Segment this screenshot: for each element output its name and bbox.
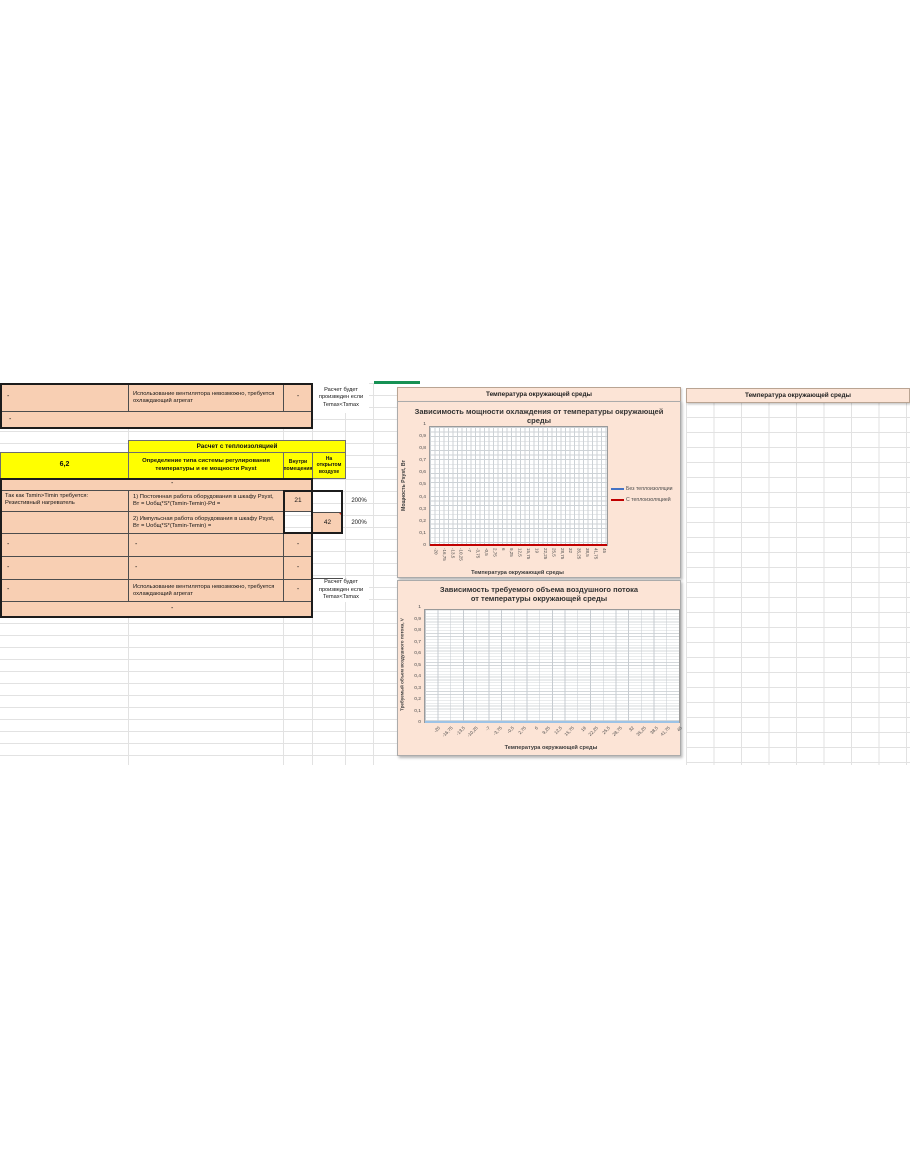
tick-label: 28,75 [555, 546, 563, 570]
tick-label: 0,5 [419, 482, 426, 487]
tick-label: 38,5 [581, 546, 589, 570]
chart1-series-line-red [430, 544, 607, 546]
chart-airflow-volume[interactable]: Зависимость требуемого объема воздушного… [397, 580, 681, 756]
tick-label: 0,2 [419, 519, 426, 524]
cell-top-value[interactable]: - [283, 383, 313, 412]
chart1-y-ticks: 10,90,80,70,60,50,40,30,20,10 [411, 422, 426, 548]
cell-r5-a[interactable]: - [0, 579, 129, 602]
tick-label: 32 [564, 546, 572, 570]
tick-label: 2,75 [488, 546, 496, 570]
tick-label: 0,9 [419, 434, 426, 439]
chart2-series-line-lightblue [425, 721, 679, 723]
tick-label: 0,4 [414, 674, 421, 679]
cell-r1-formula[interactable]: 1) Постоянная работа оборудования в шкаф… [128, 490, 284, 512]
chart-cooling-power[interactable]: Зависимость мощности охлаждения от темпе… [397, 401, 681, 578]
cell-r1-inside[interactable]: 21 [283, 490, 313, 512]
chart2-y-ticks: 10,90,80,70,60,50,40,30,20,10 [406, 605, 421, 725]
chart1-y-axis-title: Мощность Psyst, Вт [399, 426, 409, 544]
tick-label: 6 [496, 546, 504, 570]
tick-label: 19 [530, 546, 538, 570]
tick-label: 45 [597, 546, 605, 570]
tick-label: -0,5 [480, 546, 488, 570]
cell-r2-formula[interactable]: 2) Импульсная работа оборудования в шкаф… [128, 511, 284, 534]
tick-label: 22,25 [538, 546, 546, 570]
tick-label: 35,25 [572, 546, 580, 570]
tick-label: 0,3 [419, 507, 426, 512]
cell-r1-condition[interactable]: Так как Tsmin>Timin требуется: Резистивн… [0, 490, 129, 512]
tick-label: 1 [423, 422, 426, 427]
tick-label: -3,75 [471, 546, 479, 570]
tick-label: 0,1 [414, 709, 421, 714]
cell-dash-bottom-merged[interactable]: - [0, 601, 313, 618]
tick-label: 0,7 [419, 458, 426, 463]
tick-label: -10,25 [454, 546, 462, 570]
tick-label: 25,5 [547, 546, 555, 570]
tick-label: -20 [429, 546, 437, 570]
cell-r2-condition-empty[interactable] [0, 511, 129, 534]
chart2-plot-area [424, 609, 680, 723]
section-item-title[interactable]: Определение типа системы регулирования т… [128, 452, 284, 479]
tick-label: 1 [418, 605, 421, 610]
selection-border-fragment [374, 381, 420, 384]
tick-label: 12,5 [513, 546, 521, 570]
legend-line-red [611, 499, 624, 501]
cell-r5-fan-text[interactable]: Использование вентилятора невозможно, тр… [128, 579, 284, 602]
tick-label: 0,1 [419, 531, 426, 536]
cell-top-a[interactable]: - [0, 383, 129, 412]
legend-label: С теплоизоляцией [626, 497, 671, 503]
cell-r4-inside[interactable]: - [283, 556, 313, 580]
chart1-legend: Без теплоизоляции С теплоизоляцией [611, 486, 673, 503]
legend-label: Без теплоизоляции [626, 486, 673, 492]
tick-label: 41,75 [589, 546, 597, 570]
tick-label: 0,3 [414, 686, 421, 691]
comment-indicator-icon [339, 513, 342, 516]
cell-top-note[interactable]: Расчет будет произведен если Temax<Tsmax [313, 383, 369, 413]
chart2-x-ticks: -20-16,75-13,5-10,25-7-3,75-0,52,7569,25… [424, 724, 678, 744]
legend-item-no-insulation: Без теплоизоляции [611, 486, 673, 492]
cell-r3-a[interactable]: - [0, 533, 129, 557]
cell-r3-b[interactable]: - [128, 533, 284, 557]
tick-label: 0,6 [419, 470, 426, 475]
tick-label: 0,4 [419, 495, 426, 500]
chart2-x-axis-title: Температура окружающей среды [424, 745, 678, 751]
tick-label: 0,2 [414, 697, 421, 702]
tick-label: 0 [418, 720, 421, 725]
column-header-inside[interactable]: Внутри помещения [283, 452, 313, 479]
chart1-title: Зависимость мощности охлаждения от темпе… [406, 407, 672, 426]
cell-r1-outside[interactable]: 42 [312, 512, 343, 534]
chart2-title: Зависимость требуемого объема воздушного… [438, 585, 640, 604]
tick-label: 0,7 [414, 640, 421, 645]
chart1-x-ticks: -20-16,75-13,5-10,25-7-3,75-0,52,7569,25… [429, 546, 606, 570]
tick-label: 0,6 [414, 651, 421, 656]
cell-r2-percent[interactable]: 200% [345, 511, 373, 534]
cell-r5-inside[interactable]: - [283, 579, 313, 602]
cell-r4-a[interactable]: - [0, 556, 129, 580]
tick-label: 9,25 [505, 546, 513, 570]
tick-label: 0,5 [414, 663, 421, 668]
tick-label: 15,75 [522, 546, 530, 570]
header-band-left[interactable]: Температура окружающей среды [397, 387, 681, 402]
cell-r3-inside[interactable]: - [283, 533, 313, 557]
legend-line-blue [611, 488, 624, 490]
chart1-plot-area [429, 426, 608, 546]
tick-label: -16,75 [437, 546, 445, 570]
tick-label: 0,9 [414, 617, 421, 622]
cell-r4-b[interactable]: - [128, 556, 284, 580]
tick-label: -7 [463, 546, 471, 570]
tick-label: 0,8 [419, 446, 426, 451]
cell-r5-note[interactable]: Расчет будет произведен если Temax<Tsmax [313, 579, 369, 602]
cell-r1-outside-value: 42 [324, 519, 331, 527]
tick-label: 0,8 [414, 628, 421, 633]
cell-top-dash-row[interactable]: - [0, 411, 313, 429]
legend-item-with-insulation: С теплоизоляцией [611, 497, 673, 503]
sheet-gridlines-right [686, 402, 910, 765]
chart1-x-axis-title: Температура окружающей среды [429, 570, 606, 576]
spreadsheet-canvas: - Использование вентилятора невозможно, … [0, 0, 910, 1155]
column-gridline [373, 383, 374, 765]
header-band-right[interactable]: Температура окружающей среды [686, 388, 910, 403]
tick-label: 0 [423, 543, 426, 548]
tick-label: -13,5 [446, 546, 454, 570]
section-item-number[interactable]: 6,2 [0, 452, 129, 479]
cell-r1-percent[interactable]: 200% [345, 490, 373, 512]
column-header-outside[interactable]: На открытом воздухе [312, 452, 346, 479]
cell-top-fan-text[interactable]: Использование вентилятора невозможно, тр… [128, 383, 284, 412]
